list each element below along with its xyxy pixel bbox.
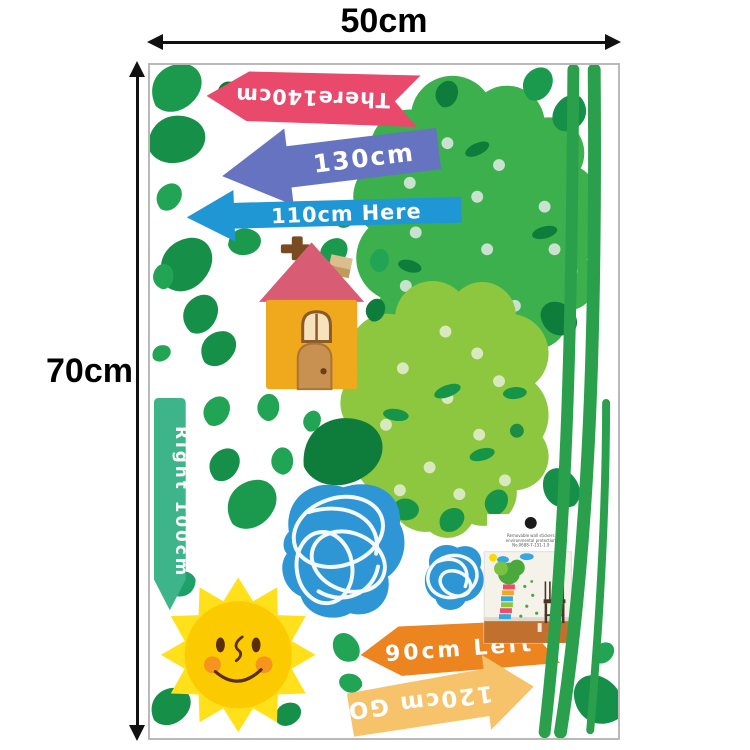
sticker-sheet-art: There140cm 130cm 110cm Here [150, 65, 618, 738]
leaf-icon [152, 345, 170, 361]
product-image: 50cm 70cm [0, 0, 750, 750]
cloud-sticker-large [282, 484, 404, 617]
leaf-icon [204, 444, 246, 485]
leaf-icon [222, 475, 283, 533]
cloud-sticker-small [423, 545, 484, 610]
leaf-icon [152, 180, 187, 214]
inset-line-3: No.0688-7-131-1.9 [512, 543, 550, 548]
leaf-icon [275, 702, 302, 726]
leaf-icon [332, 632, 361, 663]
house-sticker [259, 236, 364, 389]
leaf-icon [150, 109, 210, 171]
height-dimension-label: 70cm [46, 352, 132, 391]
leaf-icon [198, 392, 236, 429]
arrow-100-label: Right 100cm [172, 426, 192, 578]
leaf-icon [197, 328, 241, 369]
width-dimension-arrow [162, 41, 606, 44]
leaf-icon [266, 444, 299, 478]
leaf-icon [176, 289, 226, 338]
width-dimension-label: 50cm [162, 2, 606, 41]
leaf-icon [252, 390, 286, 424]
leaf-icon [150, 65, 206, 115]
sticker-sheet: There140cm 130cm 110cm Here [148, 63, 620, 740]
height-dimension-arrow [136, 76, 139, 726]
arrow-140-sticker: There140cm [206, 68, 421, 127]
